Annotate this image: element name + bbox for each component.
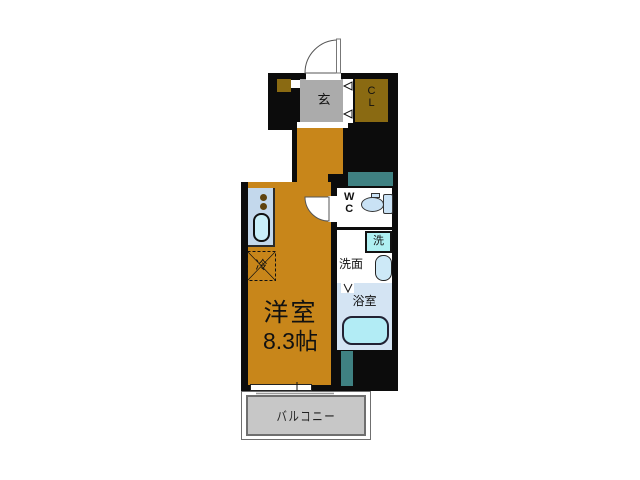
entry-door-leaf [337, 39, 341, 73]
wc-label: W C [344, 192, 354, 215]
bathtub-icon [342, 316, 389, 345]
washroom-label: 洗面 [339, 258, 363, 271]
fridge-label: 冷 [247, 258, 276, 273]
balcony: バルコニー [246, 395, 366, 436]
kitchen-sink-icon [253, 213, 270, 242]
bathroom-label: 浴室 [337, 294, 392, 308]
main-room-corridor-floor [297, 123, 343, 174]
closet-label-line2: L [355, 98, 388, 110]
wall-left-lower [241, 182, 248, 391]
closet-label-line1: C [355, 86, 388, 98]
wc-doorway [328, 196, 337, 222]
bathroom-door-patch [341, 283, 354, 293]
genkan-step [297, 122, 348, 128]
main-room-name: 洋室 [243, 300, 338, 326]
wc-label-line2: C [344, 204, 354, 216]
stove-burner-1 [260, 194, 267, 201]
balcony-label: バルコニー [276, 406, 336, 425]
entry-side-box [277, 79, 291, 92]
floor-plan-canvas: C L 玄 W C 洗 洗面 浴室 冷 洋室 8.3帖 バルコニー [0, 0, 640, 480]
wc-label-line1: W [344, 192, 354, 204]
closet-area: C L [355, 79, 388, 122]
toilet-icon [361, 197, 384, 212]
main-room-label: 洋室 8.3帖 [243, 300, 338, 353]
pipe-space-block [341, 351, 353, 386]
entry-threshold [306, 73, 341, 80]
washer-label: 洗 [373, 236, 384, 248]
entry-door-arc [305, 40, 338, 73]
toilet-lid-mark [371, 193, 380, 198]
washroom-sink-icon [375, 255, 392, 281]
entry-side-gap [291, 80, 300, 88]
toilet-tank [383, 194, 393, 214]
main-room-size: 8.3帖 [243, 329, 338, 353]
genkan-label: 玄 [300, 92, 348, 108]
washer-box: 洗 [365, 231, 392, 253]
stove-burner-2 [260, 203, 267, 210]
pipe-space-band [348, 172, 393, 186]
window [250, 384, 312, 391]
